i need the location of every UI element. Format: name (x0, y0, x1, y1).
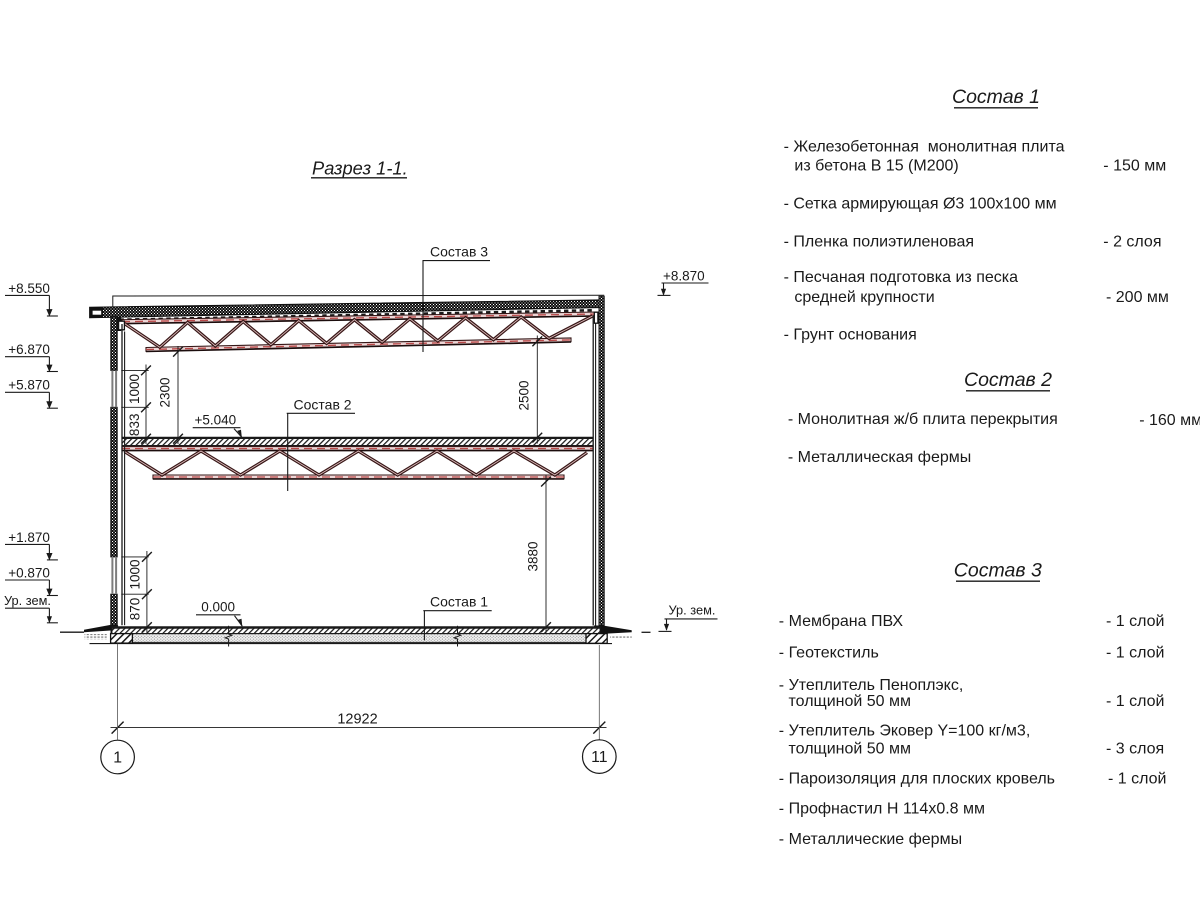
svg-text:из бетона В 15 (М200): из бетона В 15 (М200) (794, 157, 958, 174)
svg-text:1000: 1000 (127, 374, 142, 404)
svg-text:- 200 мм: - 200 мм (1106, 289, 1169, 306)
svg-text:- 2 слоя: - 2 слоя (1103, 233, 1161, 250)
svg-text:- 150 мм: - 150 мм (1103, 158, 1166, 175)
svg-text:2500: 2500 (517, 380, 532, 410)
svg-text:- Железобетонная монолитная п: - Железобетонная монолитная плита (784, 138, 1065, 155)
svg-text:0.000: 0.000 (201, 600, 235, 615)
svg-text:- Утеплитель Эковер Y=100 кг/м: - Утеплитель Эковер Y=100 кг/м3, (779, 722, 1030, 739)
svg-text:+5.040: +5.040 (195, 413, 237, 428)
svg-text:толщиной 50 мм: толщиной 50 мм (789, 740, 912, 757)
svg-text:- Мембрана ПВХ: - Мембрана ПВХ (779, 613, 904, 630)
svg-text:Состав 3: Состав 3 (430, 243, 488, 259)
svg-text:- Утеплитель Пеноплэкс,: - Утеплитель Пеноплэкс, (779, 677, 963, 694)
svg-text:11: 11 (591, 749, 608, 766)
svg-text:- 1 слой: - 1 слой (1106, 644, 1164, 661)
svg-text:Состав 2: Состав 2 (294, 396, 352, 412)
svg-text:- Металлические фермы: - Металлические фермы (779, 831, 962, 848)
svg-text:Разрез 1-1.: Разрез 1-1. (312, 158, 408, 179)
svg-text:+8.870: +8.870 (663, 268, 705, 283)
svg-text:+0.870: +0.870 (8, 565, 50, 580)
svg-text:- Пароизоляция для плоских кро: - Пароизоляция для плоских кровель (779, 770, 1055, 787)
svg-text:Состав 3: Состав 3 (954, 559, 1042, 581)
svg-text:12922: 12922 (337, 711, 377, 727)
svg-text:толщиной 50 мм: толщиной 50 мм (789, 693, 912, 710)
svg-text:- Геотекстиль: - Геотекстиль (779, 644, 879, 661)
svg-text:+6.870: +6.870 (8, 342, 50, 357)
svg-text:- Металлическая фермы: - Металлическая фермы (788, 449, 971, 466)
svg-text:+1.870: +1.870 (8, 530, 50, 545)
svg-text:1: 1 (113, 749, 122, 766)
svg-text:1000: 1000 (128, 559, 143, 589)
svg-text:Ур. зем.: Ур. зем. (669, 603, 716, 618)
svg-text:- Сетка армирующая Ø3 100х100: - Сетка армирующая Ø3 100х100 мм (784, 196, 1057, 213)
svg-text:- Пленка полиэтиленовая: - Пленка полиэтиленовая (784, 233, 974, 250)
svg-text:- 1 слой: - 1 слой (1106, 613, 1164, 630)
svg-text:- 1 слой: - 1 слой (1108, 770, 1166, 787)
svg-text:- Профнастил Н 114х0.8 мм: - Профнастил Н 114х0.8 мм (779, 800, 985, 817)
svg-text:- 1 слой: - 1 слой (1106, 693, 1164, 710)
svg-text:Состав 1: Состав 1 (430, 594, 488, 610)
svg-text:- 3 слоя: - 3 слоя (1106, 740, 1164, 757)
svg-text:Состав 1: Состав 1 (952, 86, 1040, 108)
svg-text:- Монолитная ж/б плита перекры: - Монолитная ж/б плита перекрытия (788, 411, 1058, 428)
svg-text:+5.870: +5.870 (8, 378, 50, 393)
svg-text:- 160 мм: - 160 мм (1139, 412, 1200, 429)
svg-text:2300: 2300 (158, 377, 173, 407)
svg-text:Состав 2: Состав 2 (964, 369, 1052, 391)
svg-text:870: 870 (128, 598, 143, 621)
svg-text:+8.550: +8.550 (8, 281, 50, 296)
svg-text:- Песчаная подготовка из песка: - Песчаная подготовка из песка (784, 269, 1019, 286)
svg-text:средней крупности: средней крупности (794, 289, 934, 306)
svg-text:3880: 3880 (526, 541, 541, 571)
svg-text:Ур. зем.: Ур. зем. (4, 593, 51, 608)
svg-text:- Грунт основания: - Грунт основания (784, 327, 917, 344)
svg-text:833: 833 (127, 414, 142, 437)
